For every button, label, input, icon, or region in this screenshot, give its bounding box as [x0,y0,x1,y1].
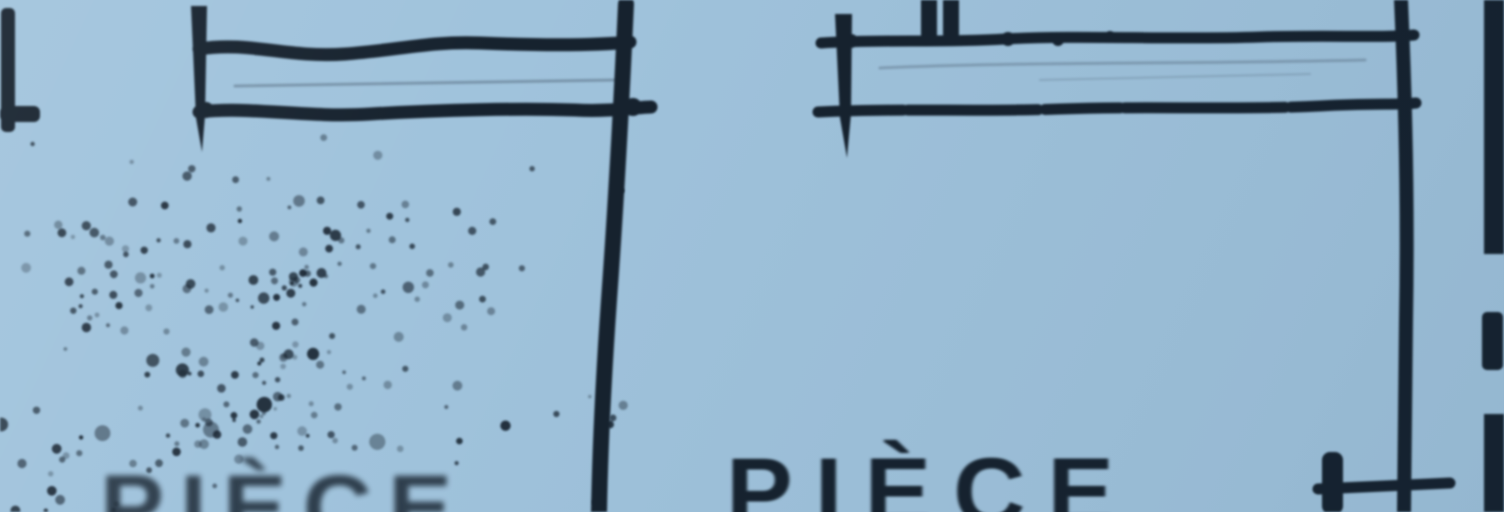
room2-wall-outer-line [821,35,1414,43]
room1-wall-faint-midline [235,80,616,86]
top-dim-tick-left [921,0,937,46]
room1-wall-outer-line [199,42,630,55]
wall-linework-layer [0,0,1504,512]
room1-wall-end-post [191,6,207,152]
room2-wall-blob-1 [844,34,858,48]
room1-wall-knot-left [198,102,214,118]
top-dim-tick-right [943,0,959,40]
floor-plan-scan: PIÈCE PIÈCE [0,0,1504,512]
room2-wall-inner-line [818,103,1416,112]
exterior-wall-upper-segment [1484,0,1504,254]
room2-wall-blob-3 [1052,34,1064,46]
room2-wall-faint-midline-2 [1040,74,1310,80]
left-edge-dim-tick [0,106,40,122]
room2-wall-blob-4 [1104,31,1116,43]
exterior-wall-middle-segment [1482,312,1503,370]
bottom-door-post [1322,452,1343,512]
room-label-left: PIÈCE [100,462,468,512]
room-label-center: PIÈCE [726,444,1136,512]
exterior-wall-lower-segment [1484,414,1504,512]
room2-wall-faint-midline [880,60,1365,68]
right-interior-wall [1401,0,1407,512]
room1-wall-inner-line [199,107,651,115]
room2-wall-blob-2 [1001,32,1015,46]
